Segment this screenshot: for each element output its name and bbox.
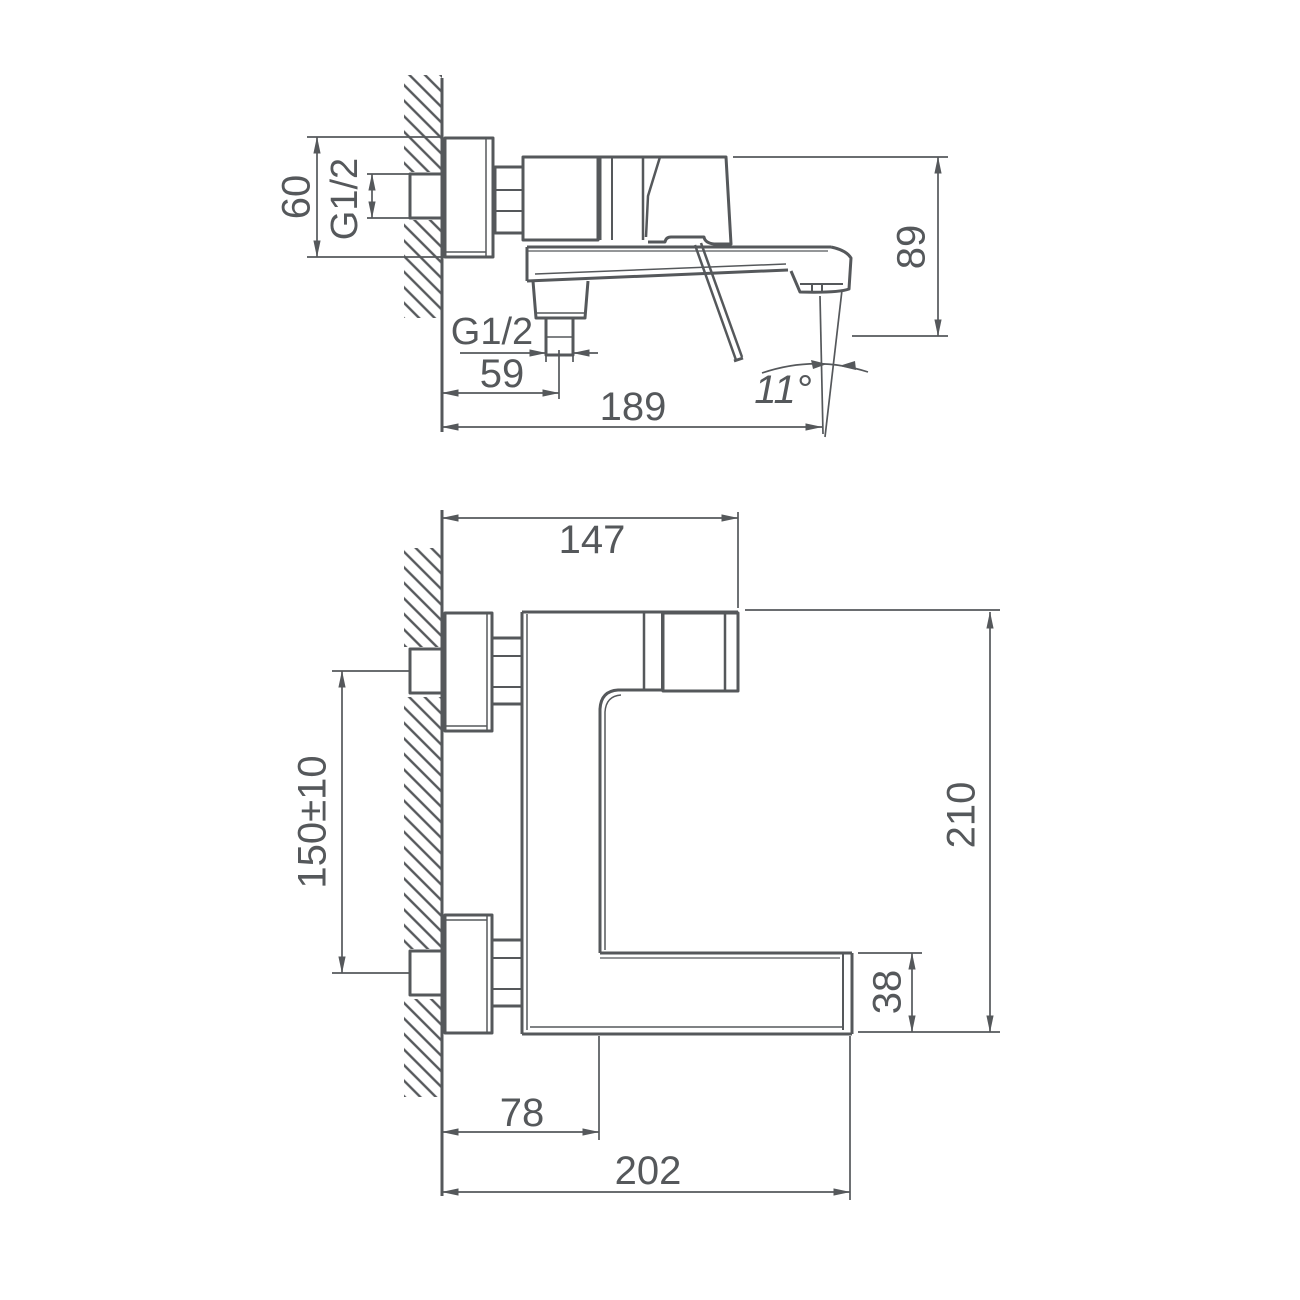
dim-202-label: 202 bbox=[615, 1149, 682, 1193]
handle-front-face bbox=[646, 157, 660, 237]
hex-nut bbox=[495, 167, 523, 233]
dim-60-label: 60 bbox=[275, 175, 319, 220]
dim-150-label: 150±10 bbox=[291, 755, 335, 888]
escutcheon-plate-lower bbox=[445, 915, 492, 1033]
valve-body bbox=[523, 157, 598, 240]
escutcheon-plate-upper bbox=[445, 613, 492, 731]
dim-89-label: 89 bbox=[890, 225, 934, 270]
dim-11deg-label: 11° bbox=[754, 368, 812, 412]
angle-arrow bbox=[839, 361, 856, 370]
faucet-dimension-drawing: 60 G1/2 89 G1/2 59 bbox=[0, 0, 1300, 1300]
lever-rod bbox=[695, 245, 736, 360]
side-view: 60 G1/2 89 G1/2 59 bbox=[275, 75, 948, 437]
handle-grip bbox=[663, 613, 738, 691]
lever-rod bbox=[701, 243, 742, 357]
dim-38-label: 38 bbox=[866, 970, 910, 1015]
dim-210-label: 210 bbox=[940, 782, 984, 849]
drawing-page: 60 G1/2 89 G1/2 59 bbox=[0, 0, 1300, 1300]
inlet-connector-hot bbox=[410, 649, 442, 693]
inlet-connector-cold bbox=[410, 951, 442, 995]
spout-underside bbox=[527, 270, 788, 281]
dim-g12-inlet-label: G1/2 bbox=[324, 158, 366, 240]
wall-hatch bbox=[404, 548, 442, 1097]
dim-g12-outlet-label: G1/2 bbox=[451, 311, 533, 353]
dim-78-label: 78 bbox=[500, 1091, 545, 1135]
body-inner-edge-2 bbox=[605, 695, 621, 950]
dimension-150 bbox=[332, 671, 410, 973]
hex-nut-lower bbox=[492, 940, 522, 1006]
dim-189-label: 189 bbox=[600, 385, 667, 429]
body-inner-edge bbox=[600, 690, 663, 953]
inlet-connector bbox=[410, 174, 442, 218]
front-view: 147 150±10 210 38 78 bbox=[291, 510, 1000, 1200]
angle-arrow bbox=[811, 360, 827, 369]
hex-nut-upper bbox=[492, 638, 522, 704]
dimension-11deg bbox=[762, 290, 868, 437]
dim-59-label: 59 bbox=[480, 352, 525, 396]
dim-147-label: 147 bbox=[559, 518, 626, 562]
